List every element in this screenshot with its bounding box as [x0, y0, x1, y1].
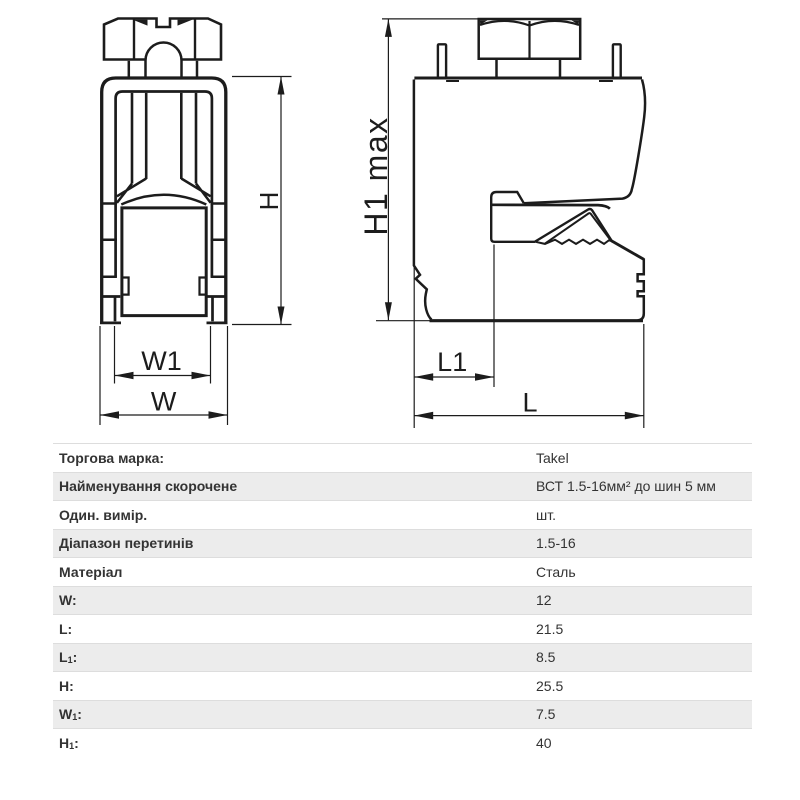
svg-text:W1: W1	[141, 346, 182, 376]
svg-text:L1: L1	[437, 347, 467, 377]
svg-text:H: H	[254, 192, 284, 211]
svg-text:L: L	[522, 388, 537, 418]
svg-text:H1 max: H1 max	[358, 116, 394, 235]
svg-text:W: W	[151, 387, 177, 417]
